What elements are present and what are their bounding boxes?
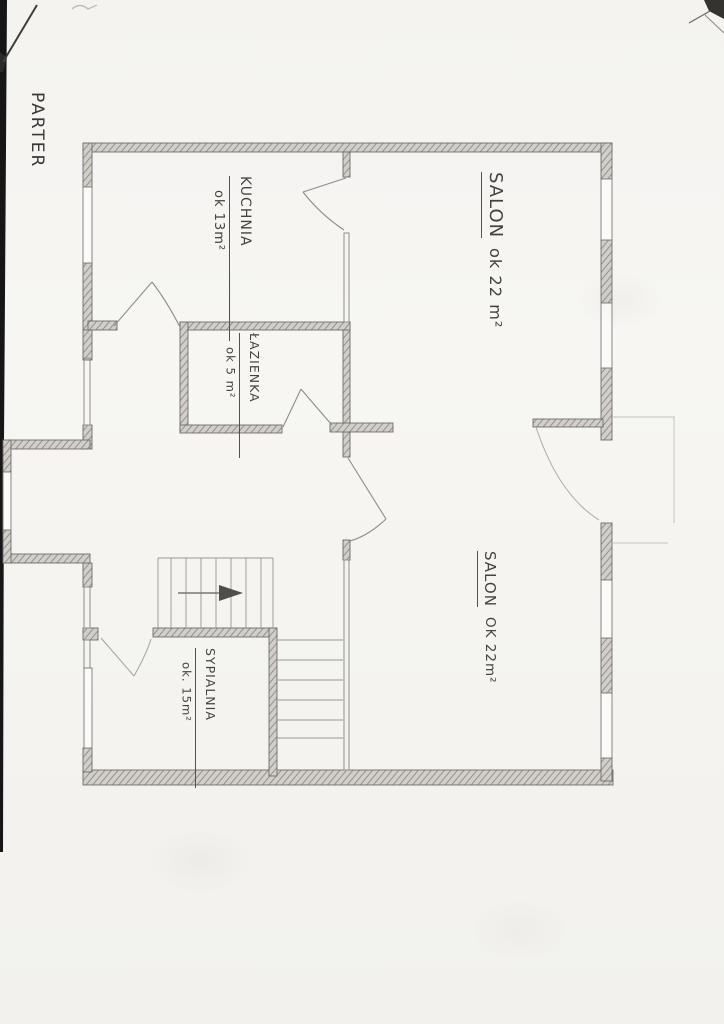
wall-left	[83, 263, 92, 330]
wall-central	[343, 322, 350, 432]
dogear-corner	[704, 0, 724, 19]
room-name: KUCHNIA	[229, 176, 256, 341]
window-vestibule	[3, 472, 11, 530]
salon-exterior-door-leaf	[533, 419, 603, 427]
door-salon-exterior-swing	[536, 427, 599, 520]
wall-left-thin	[84, 640, 90, 668]
scan-edge-strip	[0, 0, 7, 852]
wall-left	[83, 143, 92, 187]
door-hall-salon	[348, 458, 386, 541]
bathroom-wall-left	[180, 322, 188, 432]
wall-left	[83, 748, 92, 772]
terrace-outline	[612, 417, 675, 543]
room-area: ok 13m²	[207, 176, 228, 341]
wall-right	[601, 638, 612, 693]
floor-plan-drawing	[0, 0, 724, 1024]
stairs-risers-lower	[277, 640, 343, 738]
vestibule-wall-top	[7, 440, 90, 449]
wall-top	[83, 143, 612, 152]
room-label-sypialnia: SYPIALNIA ok. 15m²	[162, 648, 220, 788]
kitchen-door-jamb	[88, 321, 117, 330]
windows	[3, 179, 612, 758]
bedroom-wall-top	[153, 628, 277, 637]
room-area: OK 22m²	[479, 617, 501, 684]
window-salon	[601, 179, 612, 240]
vestibule-wall-left	[3, 530, 11, 563]
pencil-squiggle	[72, 5, 97, 9]
room-area: ok 22 m²	[481, 248, 508, 328]
door-kitchen-salon	[303, 178, 346, 230]
room-label-kuchnia: KUCHNIA ok 13m²	[196, 176, 256, 341]
vestibule-wall-left	[3, 440, 11, 472]
room-label-lazienka: ŁAZIENKA ok 5 m²	[212, 333, 264, 458]
room-label-salon-gorny: SALONok 22 m²	[472, 172, 510, 467]
floor-title: PARTER	[17, 92, 51, 222]
wall-central	[343, 540, 350, 560]
floor-plan-page: PARTER KUCHNIA ok 13m² SALONok 22 m² ŁAZ…	[0, 0, 724, 1024]
wall-stairs-salon-thin	[344, 560, 349, 770]
folded-corner-line	[3, 5, 37, 62]
window-kitchen	[83, 187, 92, 263]
wall-kitchen-salon	[343, 152, 350, 177]
room-name: SALON	[481, 172, 506, 238]
room-name: SYPIALNIA	[195, 648, 220, 788]
wall-left-thin	[84, 358, 90, 425]
door-bathroom	[283, 389, 332, 427]
wall-right	[601, 143, 612, 179]
wall-right	[601, 523, 612, 580]
window-salon	[601, 580, 612, 638]
wall-stub-salon	[330, 423, 393, 432]
wall-right	[601, 368, 612, 440]
wall-central	[343, 432, 350, 457]
bedroom-wall-right	[269, 628, 277, 776]
door-bedroom	[101, 638, 151, 676]
vestibule-wall-bottom	[7, 554, 90, 563]
dogear-line	[705, 15, 724, 33]
window-salon	[601, 303, 612, 368]
exterior-walls	[3, 143, 613, 785]
wall-left-thin	[84, 587, 90, 628]
wall-right	[601, 758, 612, 781]
room-label-salon-dolny: SALONOK 22m²	[464, 551, 502, 776]
wall-kitchen-salon-thin	[344, 233, 349, 322]
wall-left	[83, 330, 92, 360]
bedroom-door-jamb	[83, 628, 98, 640]
window-bedroom	[84, 668, 92, 748]
wall-right	[601, 240, 612, 303]
door-kitchen	[114, 282, 180, 327]
window-salon	[601, 693, 612, 758]
room-area: ok. 15m²	[176, 648, 195, 788]
room-name: SALON	[477, 551, 499, 607]
wall-left	[83, 563, 92, 587]
interior-walls	[83, 152, 603, 776]
room-name: ŁAZIENKA	[239, 333, 264, 458]
room-area: ok 5 m²	[220, 333, 239, 458]
